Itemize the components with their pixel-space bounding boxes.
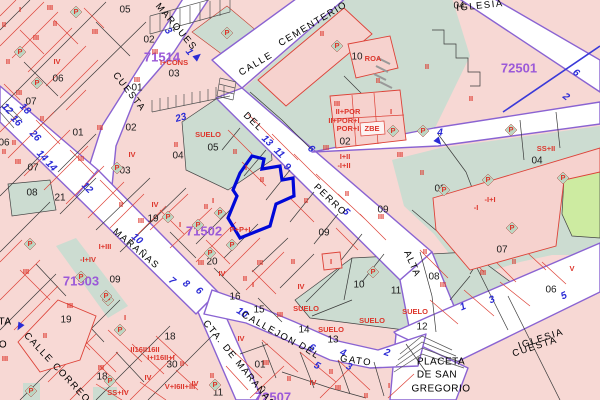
building-height-label: II bbox=[376, 76, 380, 85]
parcel-number-label: 21 bbox=[54, 193, 66, 204]
building-height-label: P bbox=[207, 248, 212, 257]
building-height-label: III bbox=[23, 267, 29, 276]
building-height-label: I+I16II+I bbox=[147, 353, 175, 362]
building-height-label: P bbox=[17, 47, 22, 56]
building-height-label: II bbox=[204, 202, 208, 211]
place-name-label: O bbox=[0, 340, 7, 351]
building-height-label: III bbox=[98, 363, 104, 372]
parcel-number-label: 07 bbox=[27, 163, 39, 174]
building-height-label: II bbox=[320, 29, 324, 38]
parcel-number-label: 05 bbox=[119, 5, 131, 16]
parcel-number-label: 07 bbox=[496, 245, 508, 256]
building-height-label: P bbox=[560, 173, 565, 182]
parcel-number-label: 04 bbox=[172, 151, 184, 162]
building-height-label: P bbox=[165, 212, 170, 221]
building-height-label: ROA bbox=[365, 54, 382, 63]
block-id-label: 71502 bbox=[186, 223, 222, 238]
building-height-label: II bbox=[420, 168, 424, 177]
building-height-label: IV bbox=[53, 57, 60, 66]
building-height-label: II bbox=[423, 247, 427, 256]
building-height-label: V bbox=[569, 264, 574, 273]
building-height-label: III bbox=[480, 268, 486, 277]
building-height-label: II bbox=[243, 274, 247, 283]
building-height-label: P bbox=[441, 185, 446, 194]
building-height-label: SS+IV bbox=[107, 388, 128, 397]
building-height-label: III bbox=[2, 354, 8, 363]
place-name-label: PLACETA bbox=[417, 357, 465, 368]
building-height-label: I bbox=[179, 220, 181, 229]
building-height-label: II bbox=[174, 140, 178, 149]
building-height-label: I bbox=[330, 257, 332, 266]
building-height-label: I+II bbox=[340, 152, 351, 161]
building-height-label: II bbox=[40, 114, 44, 123]
portal-number-label: 4 bbox=[436, 128, 443, 139]
building-height-label: P bbox=[114, 163, 119, 172]
building-height-label: P bbox=[217, 208, 222, 217]
place-name-label: TA bbox=[0, 317, 12, 328]
parcel-number-label: 08 bbox=[428, 272, 440, 283]
parcel-number-label: 19 bbox=[147, 214, 159, 225]
place-name-label: GREGORIO bbox=[411, 384, 470, 395]
building-height-label: P bbox=[28, 386, 33, 395]
building-height-label: P bbox=[420, 126, 425, 135]
building-height-label: P bbox=[195, 220, 200, 229]
building-height-label: II bbox=[43, 331, 47, 340]
building-height-label: II+POR bbox=[336, 107, 361, 116]
building-height-label: IV bbox=[309, 378, 316, 387]
parcel-number-label: 19 bbox=[60, 315, 72, 326]
building-height-label: IV bbox=[237, 334, 244, 343]
building-height-label: SUELO bbox=[293, 304, 319, 313]
building-height-label: I bbox=[212, 196, 214, 205]
building-height-label: II bbox=[291, 257, 295, 266]
parcel-number-label: 10 bbox=[351, 52, 363, 63]
building-height-label: P bbox=[334, 41, 339, 50]
building-height-label: P bbox=[224, 28, 229, 37]
parcel-number-label: 12 bbox=[416, 322, 428, 333]
building-height-label: II bbox=[2, 20, 6, 29]
building-height-label: -I+II bbox=[337, 161, 350, 170]
building-height-label: II bbox=[425, 62, 429, 71]
parcel-number-label: 16 bbox=[229, 292, 241, 303]
building-height-label: I+III bbox=[99, 242, 112, 251]
parcel-number-label: 06 bbox=[52, 74, 64, 85]
building-height-label: SUELO bbox=[318, 325, 344, 334]
building-height-label: P bbox=[34, 78, 39, 87]
parcel-number-label: 18 bbox=[164, 332, 176, 343]
building-height-label: IV bbox=[151, 200, 158, 209]
parcel-number-label: 02 bbox=[143, 35, 155, 46]
building-height-label: II bbox=[180, 359, 184, 368]
block-id-label: 72501 bbox=[501, 60, 537, 75]
parcel-number-label: 02 bbox=[339, 137, 351, 148]
parcel-number-label: 13 bbox=[327, 335, 339, 346]
building-height-label: III bbox=[397, 150, 403, 159]
building-height-label: II bbox=[53, 19, 57, 28]
building-height-label: III bbox=[323, 143, 329, 152]
building-height-label: P bbox=[229, 240, 234, 249]
building-height-label: I bbox=[252, 280, 254, 289]
cadastral-map: 0502030106070607010203040821190410020304… bbox=[0, 0, 600, 400]
cadastral-map-viewport[interactable]: 0502030106070607010203040821190410020304… bbox=[0, 0, 600, 400]
building-height-label: -I+I bbox=[484, 195, 495, 204]
parcel-number-label: 10 bbox=[353, 280, 365, 291]
parcel-number-label: 14 bbox=[298, 325, 310, 336]
building-height-label: POR+I bbox=[337, 124, 360, 133]
building-height-label: P bbox=[73, 7, 78, 16]
parcel-number-label: 06 bbox=[545, 285, 557, 296]
place-name-label: DE SAN bbox=[417, 370, 457, 381]
building-height-label: P bbox=[103, 291, 108, 300]
building-height-label: P bbox=[390, 126, 395, 135]
building-height-label: III bbox=[440, 280, 446, 289]
parcel-number-label: 02 bbox=[125, 123, 137, 134]
building-height-label: III bbox=[134, 75, 140, 84]
building-height-label: IV bbox=[128, 150, 135, 159]
building-height-label: II bbox=[512, 257, 516, 266]
parcel-number-label: 01 bbox=[72, 128, 84, 139]
building-height-label: I bbox=[245, 163, 247, 172]
building-height-label: III bbox=[47, 3, 53, 12]
building-height-label: III bbox=[67, 301, 73, 310]
building-height-label: -I+IV bbox=[80, 255, 96, 264]
building-height-label: II bbox=[210, 371, 214, 380]
building-height-label: P bbox=[212, 380, 217, 389]
parcel-number-label: 04 bbox=[531, 156, 543, 167]
building-height-label: P bbox=[485, 175, 490, 184]
building-height-label: P bbox=[78, 272, 83, 281]
building-height-label: I bbox=[388, 381, 390, 390]
building-height-label: SUELO bbox=[402, 307, 428, 316]
building-height-label: III bbox=[97, 123, 103, 132]
building-height-label: P bbox=[117, 325, 122, 334]
building-height-label: I bbox=[390, 107, 392, 116]
building-height-label: III bbox=[277, 310, 283, 319]
building-height-label: II bbox=[364, 391, 368, 400]
building-height-label: II bbox=[12, 138, 16, 147]
building-height-label: II bbox=[304, 196, 308, 205]
building-height-label: III bbox=[257, 258, 263, 267]
building-height-label: III bbox=[198, 258, 204, 267]
building-height-label: III bbox=[92, 27, 98, 36]
building-height-label: II bbox=[329, 367, 333, 376]
building-height-label: SUELO bbox=[359, 316, 385, 325]
building-height-label: III bbox=[78, 154, 84, 163]
building-height-label: IV bbox=[297, 282, 304, 291]
building-height-label: III bbox=[16, 88, 22, 97]
building-height-label: II bbox=[119, 200, 123, 209]
building-height-label: SS+II bbox=[537, 144, 556, 153]
building-height-label: P bbox=[509, 223, 514, 232]
building-height-label: III bbox=[152, 47, 158, 56]
parcel-number-label: 11 bbox=[391, 286, 402, 297]
building-height-label: P bbox=[370, 267, 375, 276]
building-height-label: P bbox=[107, 376, 112, 385]
building-height-label: P bbox=[508, 125, 513, 134]
building-height-label: II bbox=[469, 94, 473, 103]
building-height-label: II bbox=[2, 147, 6, 156]
building-height-label: IV bbox=[144, 373, 151, 382]
building-height-label: -I bbox=[474, 203, 479, 212]
building-height-label: ZBE bbox=[365, 124, 380, 133]
building-height-label: II bbox=[287, 374, 291, 383]
building-height-label: IV bbox=[191, 379, 198, 388]
building-height-label: III bbox=[263, 358, 269, 367]
building-height-label: III bbox=[33, 33, 39, 42]
building-height-label: II bbox=[6, 57, 10, 66]
building-height-label: III bbox=[15, 157, 21, 166]
building-height-label: I bbox=[19, 5, 21, 14]
building-height-label: SUELO bbox=[195, 130, 221, 139]
building-height-label: P bbox=[27, 239, 32, 248]
parcel-number-label: 05 bbox=[207, 143, 219, 154]
building-height-label: III bbox=[335, 383, 341, 392]
parcel-number-label: 03 bbox=[168, 69, 180, 80]
building-height-label: I+CONS bbox=[160, 58, 188, 67]
building-height-label: II bbox=[233, 147, 237, 156]
building-height-label: III bbox=[378, 212, 384, 221]
building-height-label: I bbox=[124, 313, 126, 322]
parcel-number-label: 09 bbox=[318, 228, 330, 239]
parcel-number-label: 20 bbox=[206, 257, 218, 268]
building-height-label: II bbox=[345, 189, 349, 198]
building-height-label: III bbox=[138, 216, 144, 225]
building-height-label: II bbox=[260, 175, 264, 184]
building-height-label: P+P+I bbox=[230, 225, 251, 234]
parcel-number-label: 09 bbox=[109, 275, 121, 286]
building-height-label: IV bbox=[218, 269, 225, 278]
parcel-number-label: 08 bbox=[26, 188, 38, 199]
